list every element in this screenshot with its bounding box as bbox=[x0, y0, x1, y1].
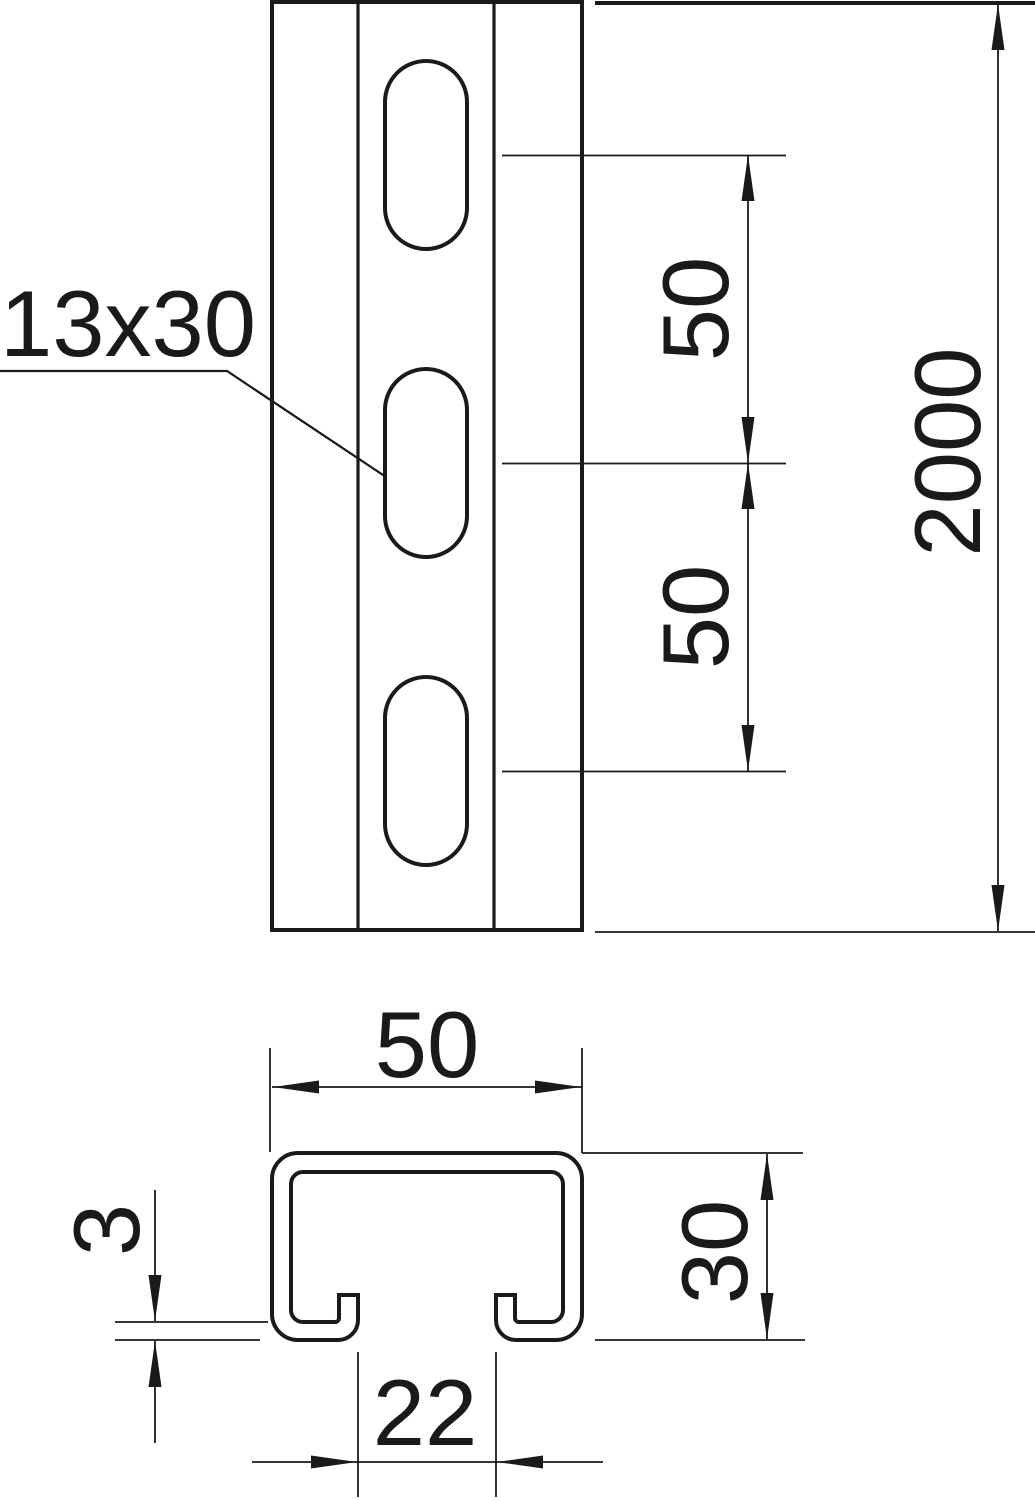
opening-dimension-value: 22 bbox=[373, 1360, 478, 1465]
section-view bbox=[272, 1153, 582, 1340]
arrowhead-left-icon bbox=[273, 1081, 319, 1094]
arrowhead-down-icon bbox=[742, 725, 755, 771]
arrowhead-left-icon bbox=[497, 1456, 543, 1469]
length-dimension-value: 2000 bbox=[895, 347, 1000, 556]
c-profile-outline bbox=[272, 1153, 582, 1340]
pitch-dimension-value-upper: 50 bbox=[643, 257, 748, 362]
pitch-dimension-value-lower: 50 bbox=[643, 565, 748, 670]
arrowhead-down-icon bbox=[149, 1275, 162, 1321]
thickness-dimension-value: 3 bbox=[54, 1204, 159, 1256]
technical-drawing-canvas: 13x30 50 50 2000 50 3 30 22 bbox=[0, 0, 1035, 1500]
profile-rail-drawing: 13x30 50 50 2000 50 3 30 22 bbox=[0, 0, 1035, 1500]
slot-hole-3 bbox=[385, 677, 467, 865]
width-dimension-value: 50 bbox=[375, 992, 480, 1097]
arrowhead-up-icon bbox=[149, 1341, 162, 1387]
slot-hole-1 bbox=[385, 61, 467, 249]
front-view bbox=[0, 0, 582, 930]
rail-body-outline bbox=[272, 2, 582, 930]
arrowhead-up-icon bbox=[992, 4, 1005, 50]
arrowhead-up-icon bbox=[742, 463, 755, 509]
slot-label-leader-line bbox=[0, 371, 386, 477]
slot-hole-2 bbox=[385, 369, 467, 557]
pitch-dimensions bbox=[502, 155, 786, 772]
slot-size-label: 13x30 bbox=[0, 271, 256, 376]
height-dimension-value: 30 bbox=[662, 1200, 767, 1305]
arrowhead-right-icon bbox=[535, 1081, 581, 1094]
arrowhead-up-icon bbox=[761, 1154, 774, 1200]
arrowhead-up-icon bbox=[742, 155, 755, 201]
arrowhead-right-icon bbox=[311, 1456, 357, 1469]
arrowhead-down-icon bbox=[742, 417, 755, 463]
arrowhead-down-icon bbox=[992, 885, 1005, 931]
